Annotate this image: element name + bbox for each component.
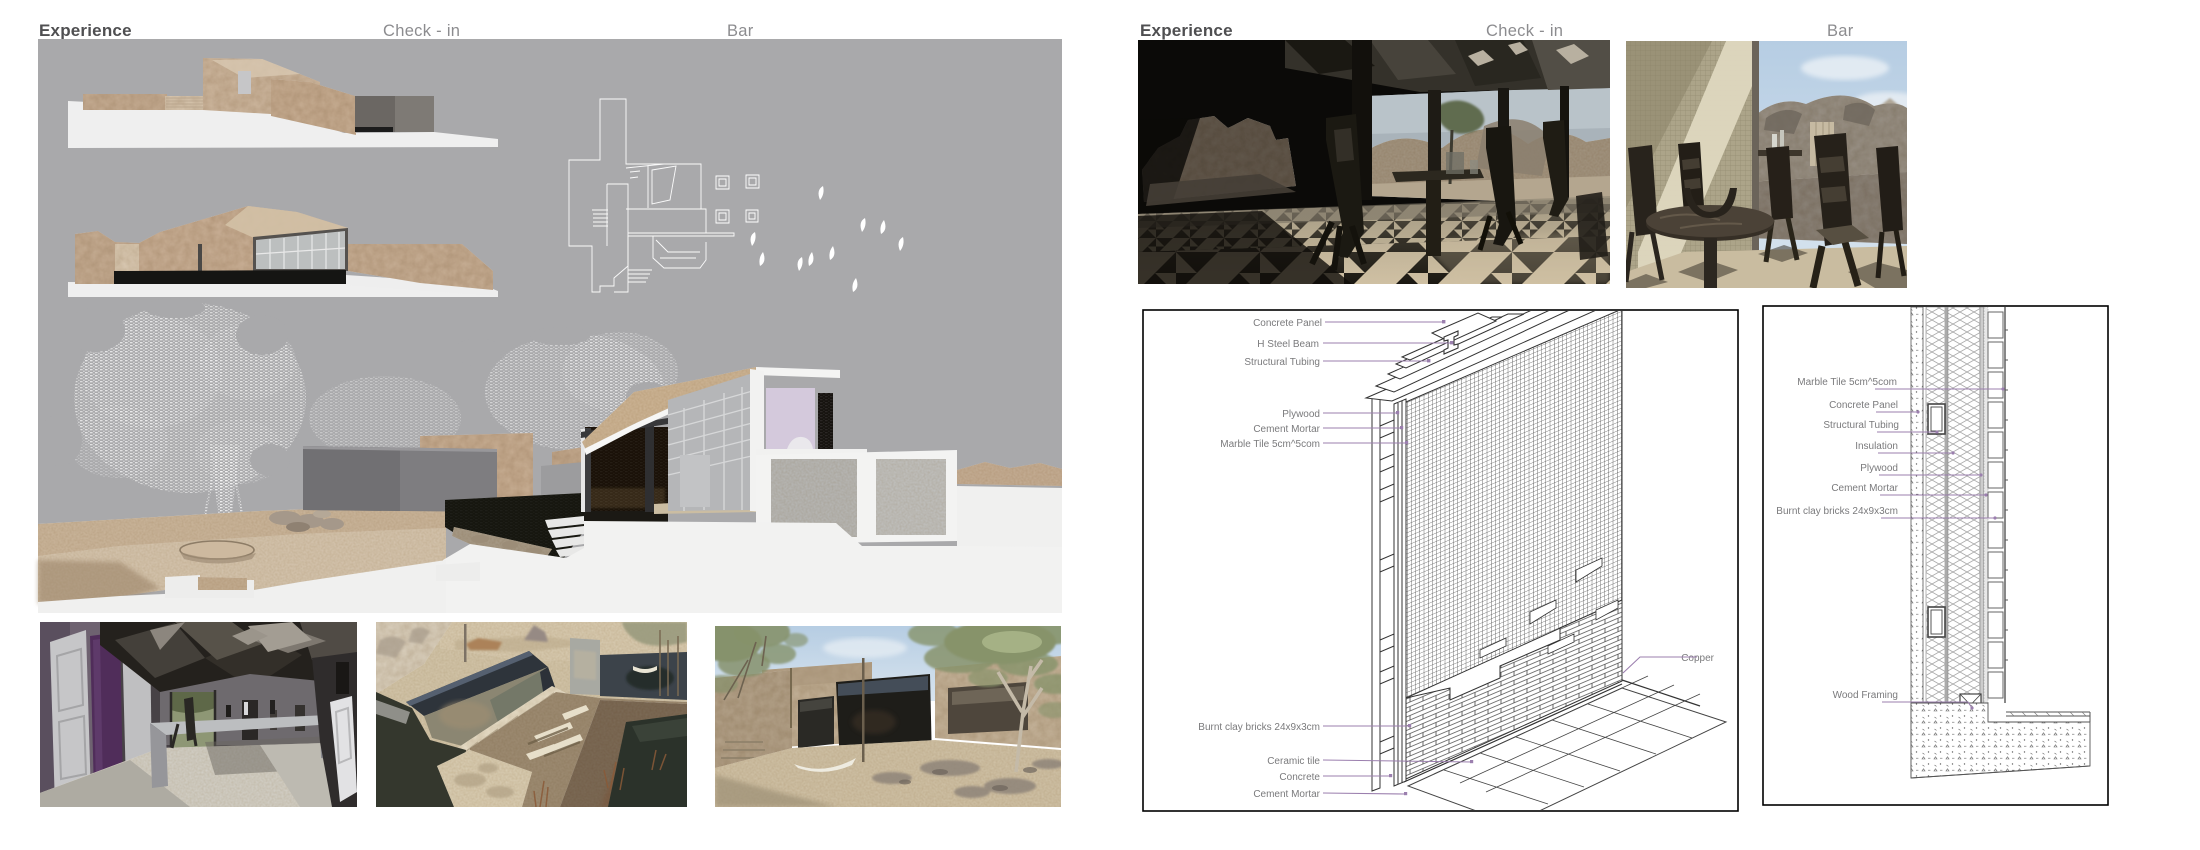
svg-text:Check - in: Check - in xyxy=(383,22,460,40)
svg-text:Concrete Panel: Concrete Panel xyxy=(1253,318,1322,329)
svg-text:H Steel Beam: H Steel Beam xyxy=(1257,339,1319,350)
svg-text:Structural Tubing: Structural Tubing xyxy=(1244,357,1320,368)
svg-text:Marble Tile 5cm^5com: Marble Tile 5cm^5com xyxy=(1220,439,1320,450)
svg-text:Wood Framing: Wood Framing xyxy=(1833,690,1898,701)
svg-text:Copper: Copper xyxy=(1681,653,1714,664)
svg-text:Insulation: Insulation xyxy=(1855,441,1898,452)
svg-text:Marble Tile 5cm^5com: Marble Tile 5cm^5com xyxy=(1797,377,1897,388)
svg-text:Cement Mortar: Cement Mortar xyxy=(1253,789,1320,800)
svg-text:Cement Mortar: Cement Mortar xyxy=(1253,424,1320,435)
svg-text:Cement Mortar: Cement Mortar xyxy=(1831,483,1898,494)
svg-text:Ceramic tile: Ceramic tile xyxy=(1267,756,1320,767)
svg-text:Burnt clay bricks 24x9x3cm: Burnt clay bricks 24x9x3cm xyxy=(1198,722,1320,733)
svg-text:Experience: Experience xyxy=(1140,21,1233,40)
svg-text:Plywood: Plywood xyxy=(1860,463,1898,474)
svg-text:Plywood: Plywood xyxy=(1282,409,1320,420)
svg-text:Bar: Bar xyxy=(727,22,754,40)
svg-text:Concrete Panel: Concrete Panel xyxy=(1829,400,1898,411)
svg-text:Check - in: Check - in xyxy=(1486,22,1563,40)
svg-text:Burnt clay bricks 24x9x3cm: Burnt clay bricks 24x9x3cm xyxy=(1776,506,1898,517)
svg-text:Structural Tubing: Structural Tubing xyxy=(1823,420,1899,431)
svg-text:Experience: Experience xyxy=(39,21,132,40)
svg-text:Bar: Bar xyxy=(1827,22,1854,40)
svg-text:Concrete: Concrete xyxy=(1279,772,1320,783)
